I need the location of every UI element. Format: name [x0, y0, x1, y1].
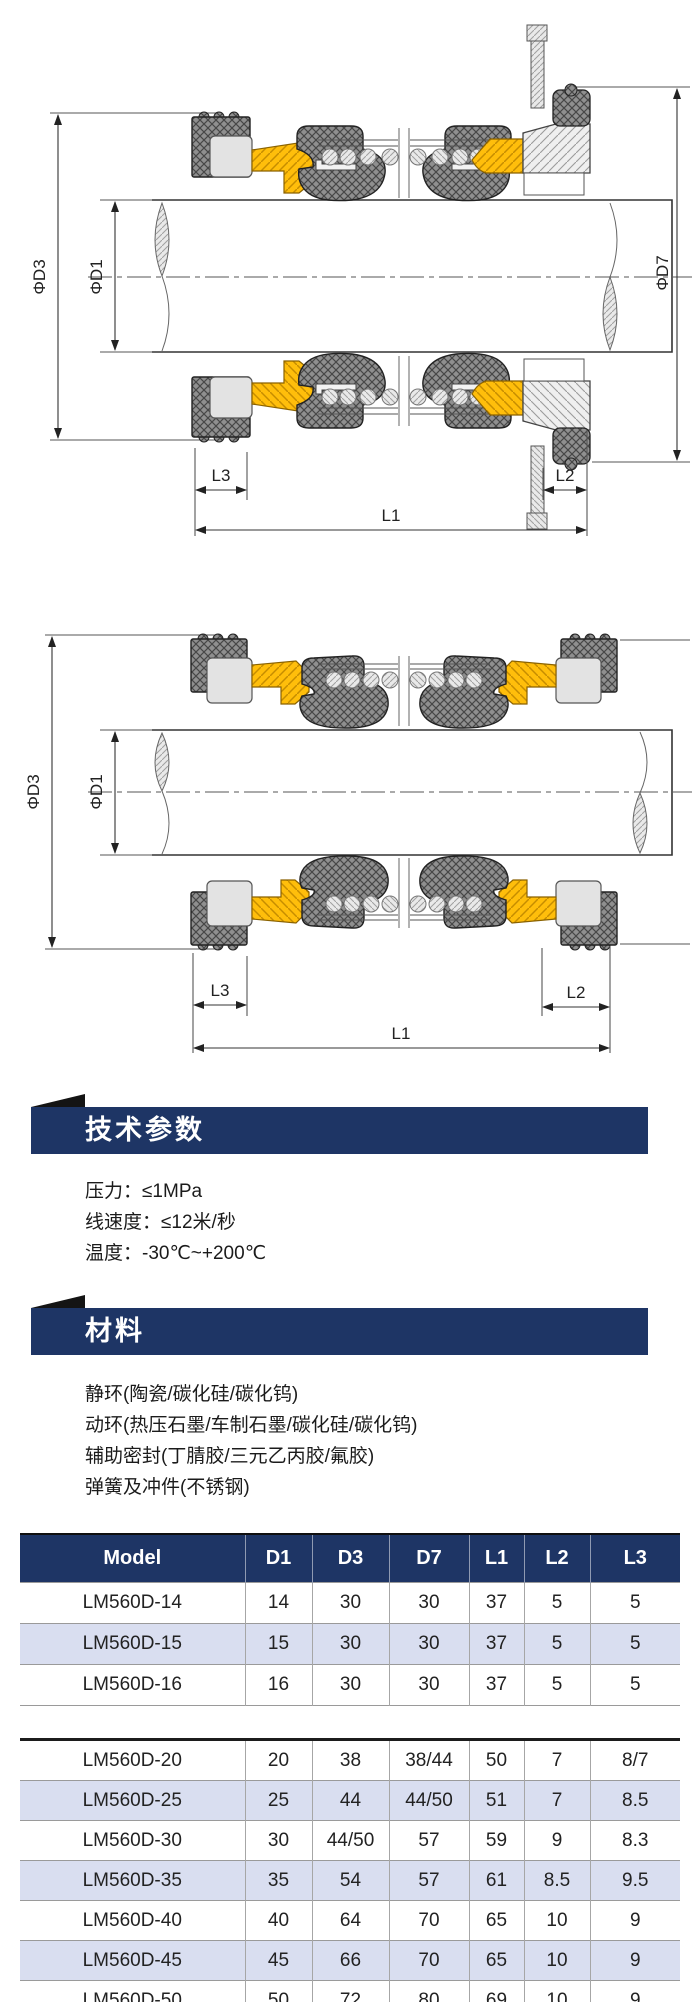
materials-text: 静环(陶瓷/碳化硅/碳化钨) 动环(热压石墨/车制石墨/碳化硅/碳化钨) 辅助密… [85, 1379, 418, 1503]
table-gap-cell [20, 1706, 680, 1740]
value-cell: 10 [524, 1901, 590, 1941]
value-cell: 44/50 [312, 1821, 389, 1861]
material-stationary-ring: 静环(陶瓷/碳化硅/碳化钨) [85, 1379, 418, 1410]
spec-table: ModelD1D3D7L1L2L3 LM560D-141430303755LM5… [20, 1533, 680, 2002]
value-cell: 8.5 [524, 1861, 590, 1901]
banner-fold-decoration [31, 1094, 85, 1107]
tech-params-title: 技术参数 [31, 1107, 648, 1154]
table-group-small-sizes: LM560D-141430303755LM560D-151530303755LM… [20, 1583, 680, 1706]
dim-label-l2: L2 [567, 983, 586, 1002]
value-cell: 30 [312, 1624, 389, 1665]
elastomer-bellows [300, 656, 388, 728]
value-cell: 50 [469, 1740, 524, 1781]
value-cell: 14 [245, 1583, 312, 1624]
value-cell: 72 [312, 1981, 389, 2002]
seal-assembly-top [191, 634, 617, 728]
value-cell: 8.3 [590, 1821, 680, 1861]
gland-spacer [524, 173, 584, 195]
value-cell: 61 [469, 1861, 524, 1901]
spring [326, 672, 342, 688]
value-cell: 30 [312, 1583, 389, 1624]
value-cell: 9 [590, 1941, 680, 1981]
table-row: LM560D-20203838/445078/7 [20, 1740, 680, 1781]
spring [360, 149, 376, 165]
value-cell: 44 [312, 1781, 389, 1821]
value-cell: 37 [469, 1583, 524, 1624]
value-cell: 5 [524, 1624, 590, 1665]
value-cell: 51 [469, 1781, 524, 1821]
dim-label-l1: L1 [382, 506, 401, 525]
value-cell: 70 [389, 1941, 469, 1981]
value-cell: 5 [590, 1665, 680, 1706]
value-cell: 30 [312, 1665, 389, 1706]
model-cell: LM560D-25 [20, 1781, 245, 1821]
table-row: LM560D-5050728069109 [20, 1981, 680, 2002]
seal-assembly-top [192, 25, 590, 201]
spring [363, 672, 379, 688]
value-cell: 7 [524, 1781, 590, 1821]
model-cell: LM560D-20 [20, 1740, 245, 1781]
material-rotary-ring: 动环(热压石墨/车制石墨/碳化硅/碳化钨) [85, 1410, 418, 1441]
value-cell: 5 [524, 1665, 590, 1706]
value-cell: 57 [389, 1821, 469, 1861]
value-cell: 5 [590, 1583, 680, 1624]
spring [322, 149, 338, 165]
model-cell: LM560D-50 [20, 1981, 245, 2002]
value-cell: 9.5 [590, 1861, 680, 1901]
table-row: LM560D-141430303755 [20, 1583, 680, 1624]
table-header-row: ModelD1D3D7L1L2L3 [20, 1534, 680, 1583]
value-cell: 7 [524, 1740, 590, 1781]
table-section-gap [20, 1706, 680, 1740]
value-cell: 40 [245, 1901, 312, 1941]
dim-label-d7: ΦD7 [653, 255, 672, 290]
table-group-large-sizes: LM560D-20203838/445078/7LM560D-25254444/… [20, 1740, 680, 2002]
value-cell: 57 [389, 1861, 469, 1901]
datasheet-page: ΦD3 ΦD1 ΦD7 L3 L2 L1 [0, 0, 700, 2002]
seal-face [252, 661, 309, 704]
value-cell: 25 [245, 1781, 312, 1821]
model-cell: LM560D-16 [20, 1665, 245, 1706]
value-cell: 66 [312, 1941, 389, 1981]
value-cell: 8/7 [590, 1740, 680, 1781]
value-cell: 10 [524, 1941, 590, 1981]
column-header: L3 [590, 1534, 680, 1583]
model-cell: LM560D-15 [20, 1624, 245, 1665]
gland [523, 124, 590, 173]
material-secondary-seal: 辅助密封(丁腈胶/三元乙丙胶/氟胶) [85, 1441, 418, 1472]
value-cell: 20 [245, 1740, 312, 1781]
value-cell: 64 [312, 1901, 389, 1941]
value-cell: 15 [245, 1624, 312, 1665]
value-cell: 37 [469, 1624, 524, 1665]
column-header: L1 [469, 1534, 524, 1583]
value-cell: 9 [524, 1821, 590, 1861]
value-cell: 5 [590, 1624, 680, 1665]
model-cell: LM560D-40 [20, 1901, 245, 1941]
value-cell: 9 [590, 1901, 680, 1941]
shaft [88, 730, 692, 855]
model-cell: LM560D-35 [20, 1861, 245, 1901]
value-cell: 30 [245, 1821, 312, 1861]
spring [340, 149, 356, 165]
dim-label-d3: ΦD3 [24, 774, 43, 809]
tech-params-banner: 技术参数 [31, 1107, 648, 1154]
value-cell: 38/44 [389, 1740, 469, 1781]
dim-label-d3: ΦD3 [30, 259, 49, 294]
param-pressure: 压力：≤1MPa [85, 1176, 266, 1207]
dim-label-d1: ΦD1 [87, 774, 106, 809]
dim-label-l3: L3 [211, 981, 230, 1000]
table-row: LM560D-25254444/505178.5 [20, 1781, 680, 1821]
flange-stud-cap [527, 25, 547, 41]
table-row: LM560D-303044/50575998.3 [20, 1821, 680, 1861]
value-cell: 9 [590, 1981, 680, 2002]
value-cell: 65 [469, 1901, 524, 1941]
value-cell: 38 [312, 1740, 389, 1781]
column-header: D1 [245, 1534, 312, 1583]
tech-params-text: 压力：≤1MPa 线速度：≤12米/秒 温度：-30℃~+200℃ [85, 1176, 266, 1269]
value-cell: 30 [389, 1665, 469, 1706]
value-cell: 65 [469, 1941, 524, 1981]
value-cell: 59 [469, 1821, 524, 1861]
material-spring-parts: 弹簧及冲件(不锈钢) [85, 1472, 418, 1503]
value-cell: 30 [389, 1624, 469, 1665]
value-cell: 10 [524, 1981, 590, 2002]
drive-collar [207, 658, 252, 703]
param-speed: 线速度：≤12米/秒 [85, 1207, 266, 1238]
value-cell: 8.5 [590, 1781, 680, 1821]
param-temperature: 温度：-30℃~+200℃ [85, 1238, 266, 1269]
value-cell: 70 [389, 1901, 469, 1941]
column-header: L2 [524, 1534, 590, 1583]
dim-label-d1: ΦD1 [87, 259, 106, 294]
value-cell: 69 [469, 1981, 524, 2002]
value-cell: 54 [312, 1861, 389, 1901]
materials-banner: 材料 [31, 1308, 648, 1355]
shaft [88, 200, 692, 352]
spring [344, 672, 360, 688]
model-cell: LM560D-30 [20, 1821, 245, 1861]
value-cell: 50 [245, 1981, 312, 2002]
column-header: D7 [389, 1534, 469, 1583]
value-cell: 16 [245, 1665, 312, 1706]
model-cell: LM560D-14 [20, 1583, 245, 1624]
table-row: LM560D-4545667065109 [20, 1941, 680, 1981]
seal-cross-section-diagram-2: ΦD3 ΦD1 L3 L2 L1 [0, 568, 700, 1080]
value-cell: 35 [245, 1861, 312, 1901]
value-cell: 45 [245, 1941, 312, 1981]
seal-assembly-bottom [192, 353, 590, 529]
value-cell: 37 [469, 1665, 524, 1706]
seal-assembly-bottom [191, 856, 617, 950]
value-cell: 80 [389, 1981, 469, 2002]
banner-fold-decoration [31, 1295, 85, 1308]
table-row: LM560D-161630303755 [20, 1665, 680, 1706]
table-row: LM560D-151530303755 [20, 1624, 680, 1665]
drive-collar [210, 136, 252, 177]
table-row: LM560D-4040647065109 [20, 1901, 680, 1941]
dim-label-l3: L3 [212, 466, 231, 485]
spring [382, 149, 398, 165]
flange-stud [531, 40, 544, 108]
column-header: Model [20, 1534, 245, 1583]
column-header: D3 [312, 1534, 389, 1583]
spring [382, 672, 398, 688]
dim-label-l1: L1 [392, 1024, 411, 1043]
value-cell: 5 [524, 1583, 590, 1624]
seal-cross-section-diagram-1: ΦD3 ΦD1 ΦD7 L3 L2 L1 [0, 0, 700, 566]
value-cell: 30 [389, 1583, 469, 1624]
materials-title: 材料 [31, 1308, 648, 1355]
dim-label-l2: L2 [556, 466, 575, 485]
table-row: LM560D-35355457618.59.5 [20, 1861, 680, 1901]
model-cell: LM560D-45 [20, 1941, 245, 1981]
value-cell: 44/50 [389, 1781, 469, 1821]
